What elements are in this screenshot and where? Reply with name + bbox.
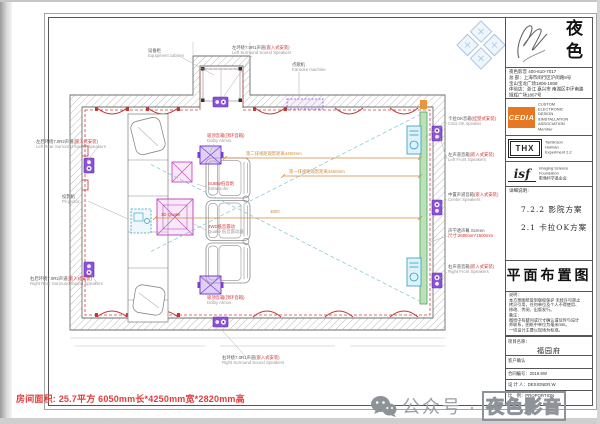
project-name-value: 福园府 [506, 346, 592, 356]
designer-row: 设 计 人：DESIGNER.W [506, 380, 592, 391]
isf-text: Imaging Science [539, 167, 573, 172]
brand-char-1: 夜 [566, 21, 583, 38]
scheme-karaoke: 2.1 卡拉OK方案 [521, 222, 592, 233]
contact-section: 夜色影音 400-610-7017 总 部：上海市闵行区沪闵路8号 宝山宝龙广场… [506, 68, 592, 99]
client-confirm-row: 客户确认 [506, 356, 592, 369]
label-atmos-top: 吸顶音箱(顶环音箱) Dolby Atmos [207, 134, 244, 144]
room-info-text: 房间面积: 25.7平方 6050mm长*4250mm宽*2820mm高 [16, 392, 245, 405]
dim-second-row: 第二排视距观影距离4450mm [246, 150, 302, 156]
label-quake-box: 3D Quake [161, 213, 180, 218]
isf-section: isf Imaging Science Foundation 影像科学基金会 [506, 162, 592, 187]
label-karaoke-speaker: 卡拉OK音箱(挂壁式安装) Cara OK speaker [448, 117, 496, 127]
isf-logo: isf [508, 167, 536, 182]
dim-first-row: 第一排视距观影距离3450mm [289, 168, 345, 174]
brand-logo-section: 夜 色 [506, 18, 592, 68]
brand-char-2: 色 [566, 44, 583, 61]
thx-section: THX Tomlinson Holman Experiment 2.2 [506, 136, 592, 162]
scheme-theater: 7.2.2 影院方案 [521, 204, 592, 215]
dim-total: 4800 [270, 210, 280, 214]
label-projector: 投影机 Projector [62, 195, 79, 205]
brand-signature-icon [509, 20, 551, 66]
label-quake: 4WD低音震动 Quake 低音震动器 [208, 225, 244, 235]
wechat-name-boxed: 夜色影音 [482, 391, 566, 421]
contract-no-row: 合同编号：2019.9W [506, 369, 592, 380]
schemes-title: 详细说明： [509, 189, 592, 195]
label-screen: 声学透声幕 Screen 尺寸:2680mm*1500mm [448, 229, 493, 239]
label-left-rear: 左后环绕7.0R2声道(嵌入式安装) Left Rear Surround So… [36, 140, 106, 150]
cedia-logo: CEDIA [508, 107, 535, 128]
label-equipment-cabinet: 设备柜 Equipment cabinet [148, 49, 184, 59]
wechat-icon [370, 395, 397, 417]
label-karaoke-machine: 点歌机 Karaoke machine [292, 63, 326, 73]
label-center-speaker: 中置声道音箱(嵌入式安装) Center Speakers [448, 193, 498, 203]
label-subwoofer: SUBW低音炮 Subwoofer [208, 182, 234, 192]
wechat-account-text: 公众号 · [402, 393, 477, 419]
schemes-section: 详细说明： 7.2.2 影院方案 2.1 卡拉OK方案 [506, 187, 592, 261]
label-atmos-bottom: 吸顶音箱(顶环音箱) Dolby Atmos [207, 296, 244, 306]
project-name-label: 项目名称： [508, 338, 530, 344]
label-left-front: 左声道音箱(嵌入式安装) Left Front Speakers [448, 153, 494, 163]
drawing-title: 平面布置图 [506, 261, 592, 292]
cedia-text: CUSTOM ELECTRONIC [538, 102, 572, 112]
notes-section: 说明： 本方案图纸受到版权保护 未经许可禁止 拷贝引用，任何单位及个人不得使用、… [506, 292, 592, 336]
label-right-surround: 右环绕7.0R1声道(嵌入式安装) Right Surround Sound S… [222, 356, 284, 366]
title-block: 夜 色 夜色影音 400-610-7017 总 部：上海市闵行区沪闵路8号 宝山… [505, 18, 592, 405]
cedia-section: CEDIA CUSTOM ELECTRONIC DESIGN &INSTALLA… [506, 99, 592, 136]
label-right-rear: 右后环绕7.0R2声道(嵌入式安装) Right Rear Surround S… [30, 277, 103, 287]
thx-logo: THX [510, 141, 540, 156]
drawing-frame-inner: 夜 色 夜色影音 400-610-7017 总 部：上海市闵行区沪闵路8号 宝山… [48, 17, 593, 406]
wechat-watermark: 公众号 · 夜色影音 [370, 391, 566, 421]
label-left-surround: 左环绕7.0R1声道(嵌入式安装) Left Surround Sound Sp… [232, 46, 291, 56]
label-right-front: 右声道音箱(嵌入式安装) Right Front Speakers [448, 265, 494, 275]
project-name-row: 项目名称： 福园府 [506, 336, 592, 356]
